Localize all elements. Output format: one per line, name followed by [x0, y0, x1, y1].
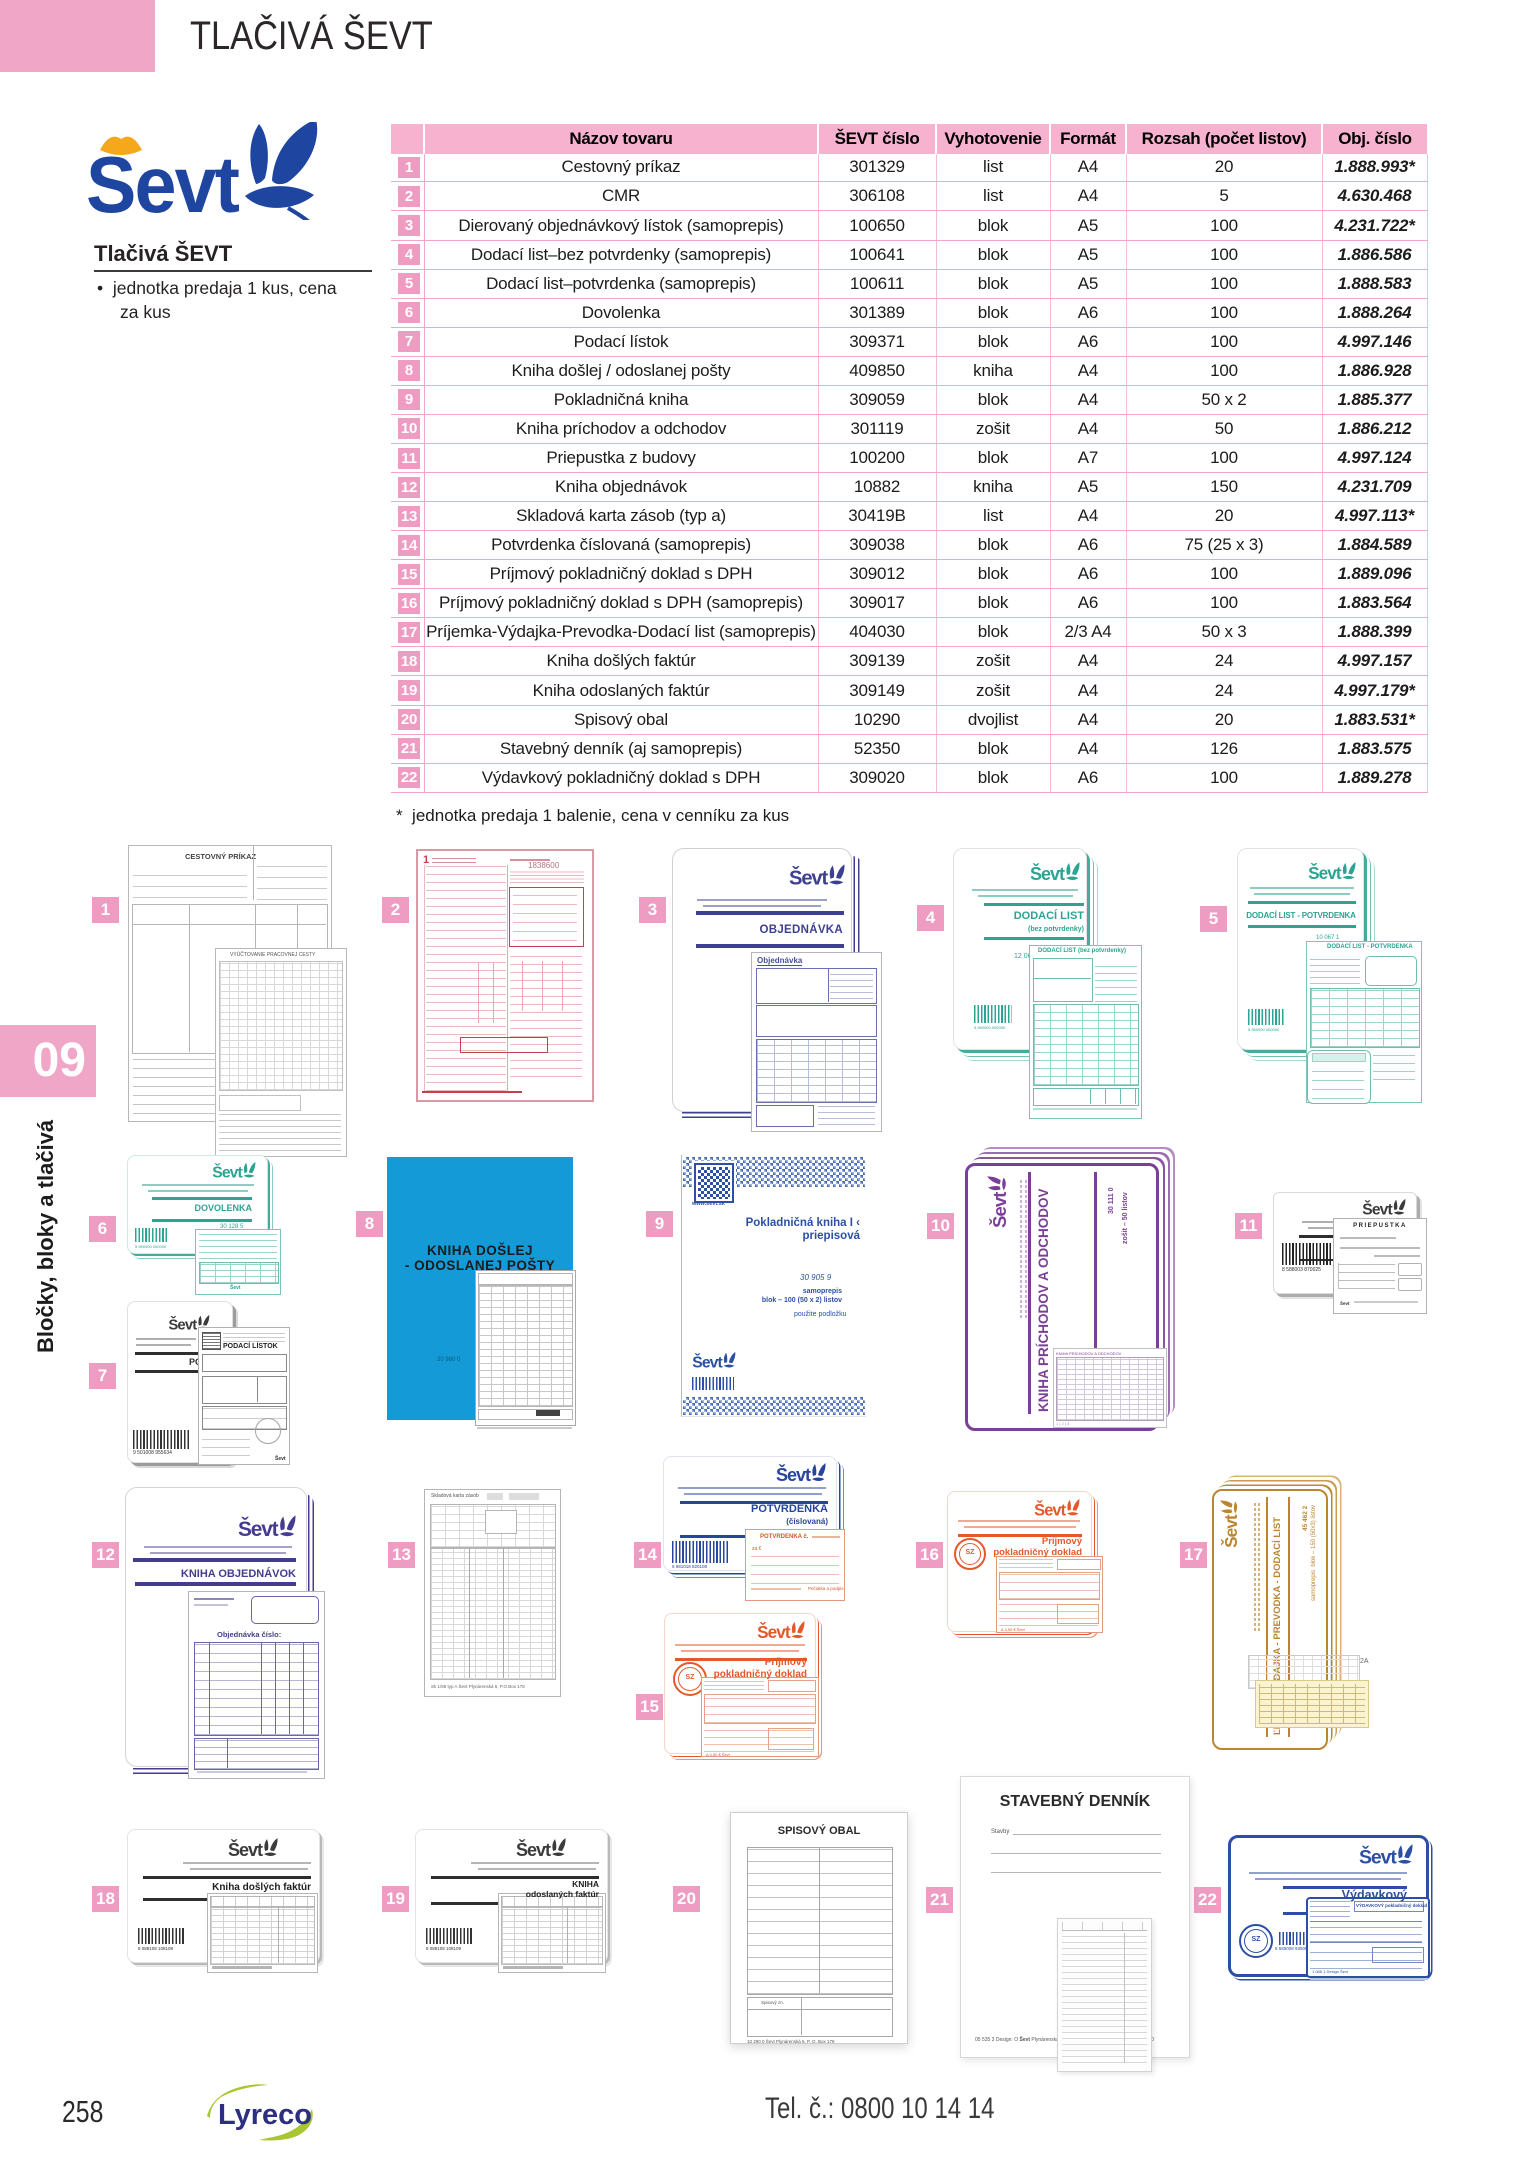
svg-text:Ševt: Ševt: [228, 1839, 263, 1860]
svg-text:Ševt: Ševt: [212, 1163, 243, 1181]
svg-text:Ševt: Ševt: [776, 1464, 811, 1485]
svg-text:Lyreco: Lyreco: [218, 2099, 312, 2131]
svg-text:Ševt: Ševt: [1030, 863, 1065, 884]
svg-text:Ševt: Ševt: [757, 1622, 791, 1642]
svg-text:Ševt: Ševt: [1308, 863, 1342, 883]
svg-text:Ševt: Ševt: [692, 1353, 723, 1371]
svg-text:Ševt: Ševt: [238, 1517, 279, 1541]
svg-text:Ševt: Ševt: [1359, 1845, 1397, 1868]
svg-text:Ševt: Ševt: [989, 1192, 1010, 1228]
svg-text:Ševt: Ševt: [168, 1316, 197, 1333]
svg-text:Ševt: Ševt: [1221, 1514, 1241, 1548]
svg-text:Ševt: Ševt: [516, 1839, 551, 1860]
svg-text:Ševt: Ševt: [789, 865, 829, 889]
svg-text:Ševt: Ševt: [1362, 1200, 1393, 1218]
svg-text:Ševt: Ševt: [1034, 1500, 1066, 1519]
